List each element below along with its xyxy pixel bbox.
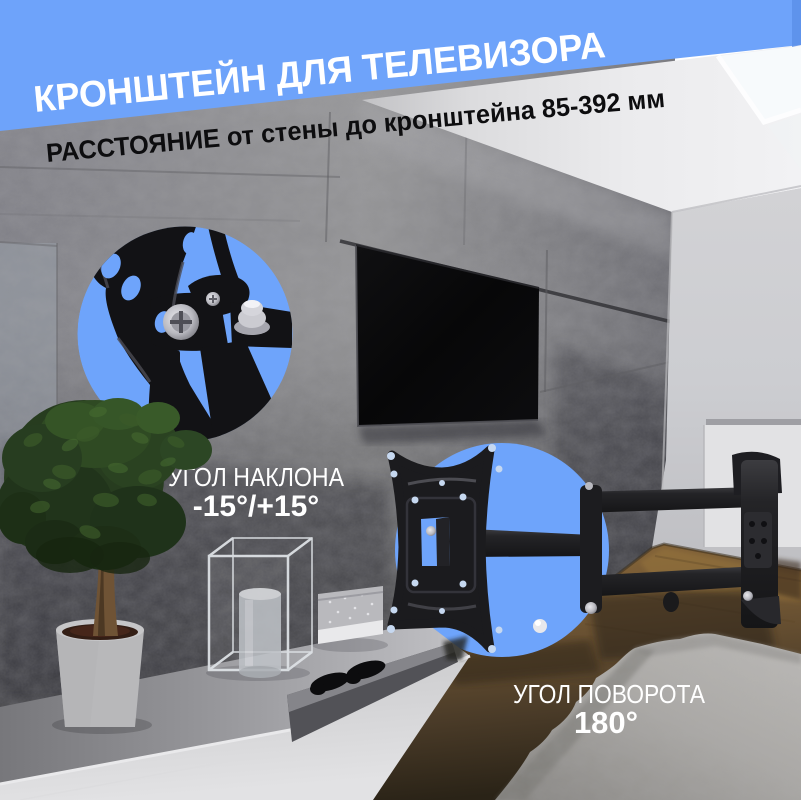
svg-text:-15°/+15°: -15°/+15° xyxy=(193,490,320,523)
svg-text:180°: 180° xyxy=(574,705,638,740)
